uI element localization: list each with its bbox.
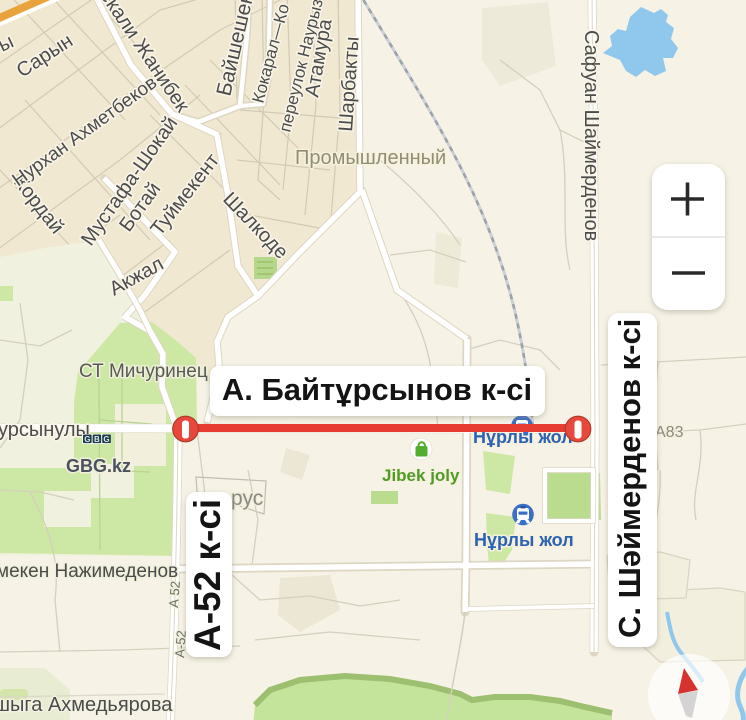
svg-text:Нұрлы жол: Нұрлы жол	[474, 530, 574, 550]
svg-text:А 52: А 52	[166, 580, 183, 608]
svg-text:Сафуан Шаймерденов: Сафуан Шаймерденов	[580, 30, 602, 241]
svg-text:урсынулы: урсынулы	[0, 419, 90, 441]
svg-text:рус: рус	[231, 487, 263, 510]
svg-text:шыга Ахмедьярова: шыга Ахмедьярова	[0, 694, 173, 716]
svg-text:С. Шәймерденов к-сі: С. Шәймерденов к-сі	[612, 319, 647, 638]
svg-text:Промышленный: Промышленный	[295, 147, 446, 169]
svg-text:G: G	[84, 435, 90, 444]
svg-text:А-52 к-сі: А-52 к-сі	[187, 499, 228, 651]
svg-text:СТ Мичуринец: СТ Мичуринец	[79, 361, 208, 382]
svg-text:Jibek joly: Jibek joly	[382, 466, 460, 485]
svg-text:B: B	[94, 435, 100, 444]
svg-text:GBG.kz: GBG.kz	[66, 456, 131, 476]
svg-text:А. Байтұрсынов к-сі: А. Байтұрсынов к-сі	[222, 372, 532, 407]
svg-text:А83: А83	[655, 424, 684, 441]
svg-text:мекен Нажимеденов: мекен Нажимеденов	[0, 561, 178, 582]
svg-text:G: G	[103, 435, 109, 444]
